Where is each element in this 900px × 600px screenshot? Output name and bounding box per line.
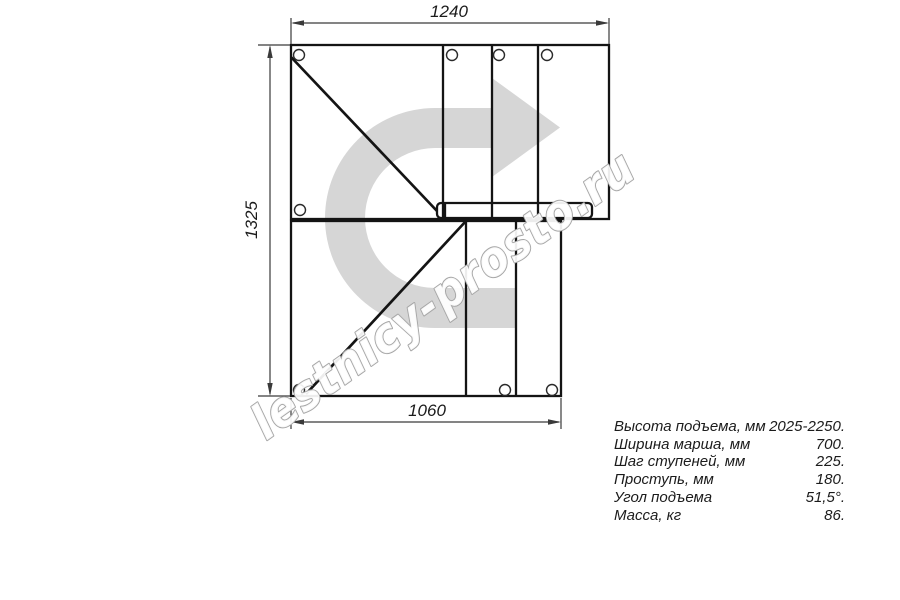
spec-label: Высота подъема, мм: [614, 418, 766, 436]
spec-value: 180.: [816, 471, 845, 489]
spec-value: 225.: [816, 453, 845, 471]
dim-left-label: 1325: [242, 201, 261, 239]
dim-top-label: 1240: [430, 2, 468, 21]
spec-row: Ширина марша, мм 700.: [614, 436, 845, 454]
mount-hole: [494, 50, 505, 61]
dim-bottom-label: 1060: [408, 401, 446, 420]
mount-hole: [500, 385, 511, 396]
mount-hole: [294, 50, 305, 61]
spec-label: Ширина марша, мм: [614, 436, 750, 454]
spec-value: 86.: [824, 507, 845, 525]
drawing-canvas: 1240 1325 1060 lestnicy-prosto.ru Высот: [0, 0, 900, 600]
mount-hole: [547, 385, 558, 396]
spec-row: Шаг ступеней, мм 225.: [614, 453, 845, 471]
spec-value: 2025-2250.: [769, 418, 845, 436]
spec-label: Масса, кг: [614, 507, 681, 525]
spec-row: Высота подъема, мм 2025-2250.: [614, 418, 845, 436]
spec-row: Угол подъема 51,5°.: [614, 489, 845, 507]
spec-label: Шаг ступеней, мм: [614, 453, 745, 471]
spec-row: Проступь, мм 180.: [614, 471, 845, 489]
dim-top: [291, 18, 609, 44]
spec-value: 51,5°.: [806, 489, 845, 507]
spec-value: 700.: [816, 436, 845, 454]
mount-hole: [295, 205, 306, 216]
spec-row: Масса, кг 86.: [614, 507, 845, 525]
mount-hole: [542, 50, 553, 61]
mount-hole: [447, 50, 458, 61]
spec-table: Высота подъема, мм 2025-2250. Ширина мар…: [614, 418, 845, 524]
spec-label: Проступь, мм: [614, 471, 714, 489]
dim-arrow: [291, 20, 304, 25]
dim-arrow: [548, 419, 561, 424]
dim-arrow: [596, 20, 609, 25]
dim-left: [258, 45, 290, 396]
spec-label: Угол подъема: [614, 489, 712, 507]
dim-arrow: [267, 45, 272, 58]
